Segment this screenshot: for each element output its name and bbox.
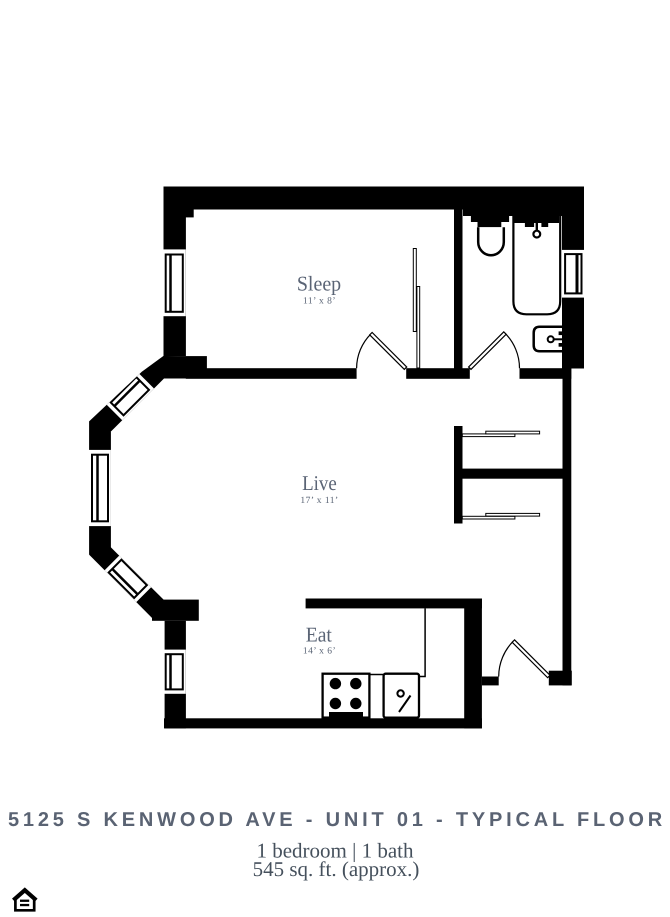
svg-text:Eat: Eat <box>306 622 332 646</box>
svg-text:11’ x 8’: 11’ x 8’ <box>303 296 336 306</box>
svg-text:17’ x 11’: 17’ x 11’ <box>300 496 338 506</box>
svg-text:14’ x 6’: 14’ x 6’ <box>303 647 336 657</box>
svg-text:Live: Live <box>302 471 337 495</box>
svg-text:Sleep: Sleep <box>297 272 341 296</box>
svg-text:5125 S KENWOOD AVE - UNIT 01 -: 5125 S KENWOOD AVE - UNIT 01 - TYPICAL F… <box>8 809 666 831</box>
svg-text:545 sq. ft. (approx.): 545 sq. ft. (approx.) <box>253 857 420 881</box>
